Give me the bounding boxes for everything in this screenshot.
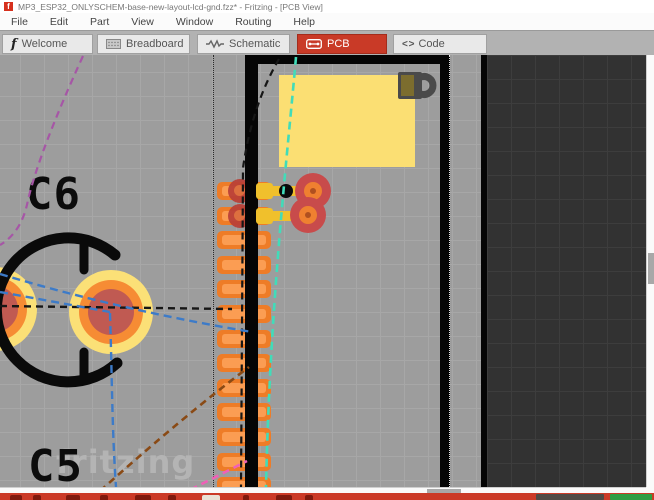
smd-pad[interactable] [217, 477, 271, 487]
tab-pcb[interactable]: PCB [297, 34, 387, 54]
vertical-scrollbar-thumb[interactable] [648, 253, 654, 284]
toolbar-icon[interactable] [10, 495, 22, 500]
menubar: File Edit Part View Window Routing Help [0, 13, 654, 31]
schematic-zigzag-icon [206, 39, 224, 49]
smd-pad[interactable] [217, 256, 271, 274]
toolbar-icon[interactable] [276, 495, 292, 500]
board-edge-left[interactable] [245, 55, 258, 487]
smd-pad[interactable] [217, 428, 271, 446]
pcb-board-icon [306, 39, 322, 49]
tab-pcb-label: PCB [327, 38, 350, 50]
breadboard-icon [106, 39, 121, 49]
window-title: MP3_ESP32_ONLYSCHEM-base-new-layout-lcd-… [18, 2, 323, 12]
toolbar-icon[interactable] [135, 495, 151, 500]
tab-welcome[interactable]: f Welcome [2, 34, 93, 54]
menu-part[interactable]: Part [79, 14, 120, 30]
fritzing-logo-icon: f [4, 2, 13, 11]
vertical-scrollbar[interactable] [646, 55, 654, 487]
toolbar-icon[interactable] [305, 495, 313, 500]
selection-dash-left [213, 55, 214, 487]
fritzing-f-icon: f [11, 38, 17, 51]
code-brackets-icon: < > [402, 39, 413, 50]
tab-schematic-label: Schematic [229, 38, 280, 50]
selection-dash-right [449, 55, 450, 487]
via-pad[interactable] [290, 197, 326, 233]
dark-pcb-part[interactable] [487, 55, 646, 487]
tab-schematic[interactable]: Schematic [197, 34, 290, 54]
tab-breadboard[interactable]: Breadboard [97, 34, 190, 54]
fritzing-window: f MP3_ESP32_ONLYSCHEM-base-new-layout-lc… [0, 0, 654, 500]
trace-bendpoint[interactable] [279, 184, 293, 198]
smd-pad[interactable] [217, 280, 271, 298]
menu-view[interactable]: View [120, 14, 165, 30]
toolbar-icon[interactable] [33, 495, 41, 500]
view-tabbar: f Welcome Breadboard Schematic PCB < > C… [0, 30, 654, 56]
menu-file[interactable]: File [0, 14, 39, 30]
bottom-toolbar [0, 493, 654, 500]
menu-routing[interactable]: Routing [224, 14, 282, 30]
toolbar-dark-button[interactable] [536, 494, 604, 500]
toolbar-icon[interactable] [100, 495, 108, 500]
menu-window[interactable]: Window [165, 14, 224, 30]
pcb-canvas[interactable]: fritzing C6 C5 [0, 55, 646, 487]
smd-pad[interactable] [217, 354, 271, 372]
smd-pad[interactable] [217, 403, 271, 421]
smd-pad[interactable] [217, 453, 271, 471]
smd-pad[interactable] [217, 330, 271, 348]
toolbar-icon[interactable] [168, 495, 176, 500]
lock-icon [396, 67, 444, 105]
toolbar-icon[interactable] [66, 495, 80, 500]
menu-help[interactable]: Help [282, 14, 326, 30]
tab-breadboard-label: Breadboard [126, 38, 184, 50]
toolbar-icon[interactable] [202, 495, 220, 500]
titlebar: f MP3_ESP32_ONLYSCHEM-base-new-layout-lc… [0, 0, 654, 14]
menu-edit[interactable]: Edit [39, 14, 79, 30]
tab-code-label: Code [418, 38, 444, 50]
board-edge-top[interactable] [245, 55, 450, 64]
tab-code[interactable]: < > Code [393, 34, 487, 54]
smd-pad[interactable] [217, 379, 271, 397]
tab-welcome-label: Welcome [22, 38, 68, 50]
smd-pad[interactable] [217, 231, 271, 249]
smd-pad[interactable] [217, 305, 271, 323]
toolbar-icon[interactable] [243, 495, 249, 500]
toolbar-green-button[interactable] [610, 494, 652, 500]
